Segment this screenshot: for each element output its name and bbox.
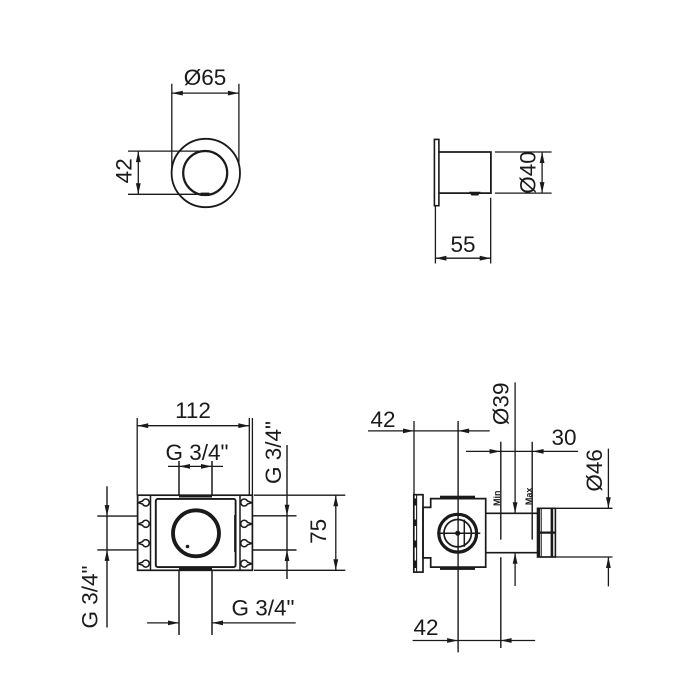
svg-text:42: 42: [413, 615, 438, 640]
svg-text:Max: Max: [524, 488, 534, 506]
svg-text:112: 112: [175, 398, 211, 423]
svg-text:Ø65: Ø65: [184, 65, 227, 90]
svg-text:55: 55: [450, 232, 475, 257]
svg-text:42: 42: [111, 158, 136, 183]
svg-text:Ø46: Ø46: [582, 449, 607, 492]
svg-text:G 3/4": G 3/4": [78, 565, 103, 628]
svg-text:Ø39: Ø39: [488, 383, 513, 426]
svg-text:G 3/4": G 3/4": [231, 596, 294, 621]
svg-text:Min: Min: [492, 490, 502, 506]
svg-text:G 3/4": G 3/4": [261, 421, 286, 484]
svg-text:Ø40: Ø40: [515, 151, 540, 194]
svg-text:30: 30: [551, 425, 576, 450]
svg-text:G 3/4": G 3/4": [165, 440, 228, 465]
svg-text:75: 75: [306, 519, 331, 544]
svg-text:42: 42: [370, 407, 395, 432]
